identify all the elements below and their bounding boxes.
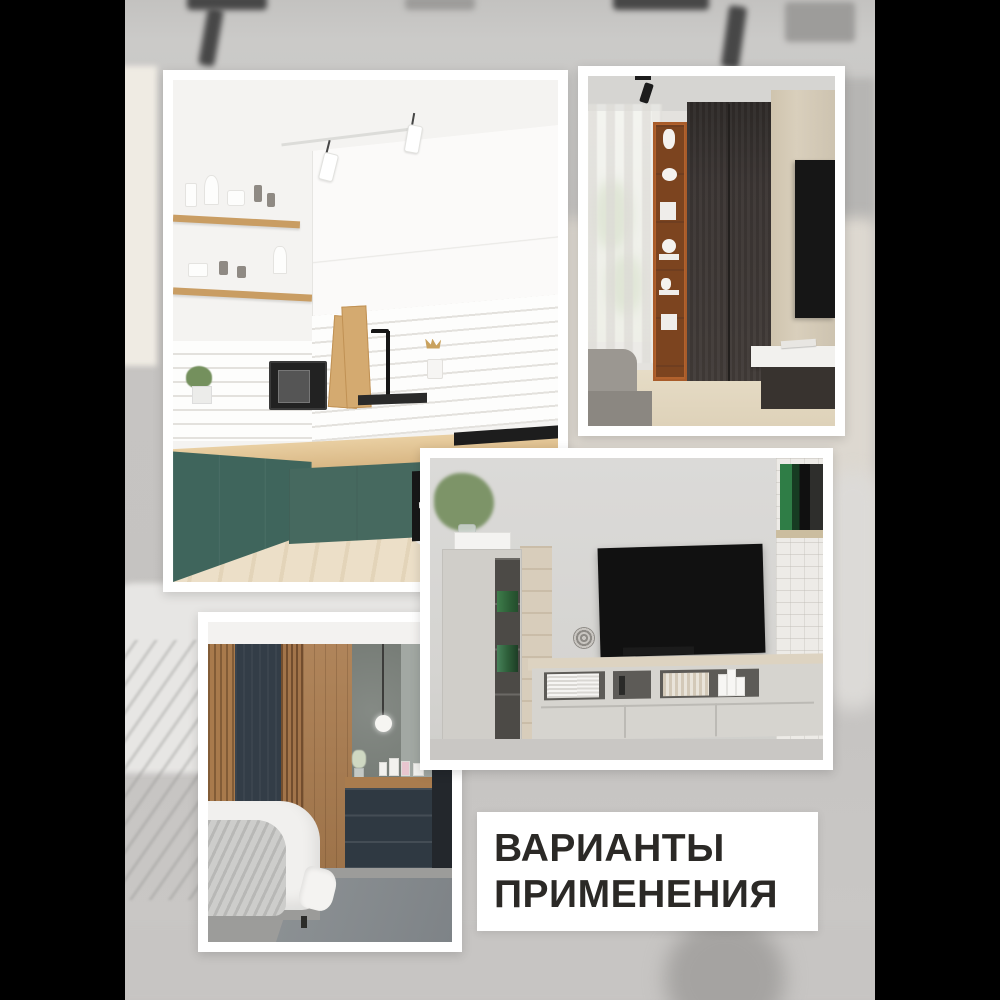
wardrobe-curtain xyxy=(588,104,662,363)
kitchen-dish-stack xyxy=(227,190,245,206)
bedroom-scene xyxy=(208,622,452,942)
wardrobe-track-arm xyxy=(635,76,651,80)
cabinet-green-books xyxy=(497,645,519,672)
caption-box: ВАРИАНТЫ ПРИМЕНЕНИЯ xyxy=(477,812,818,931)
kitchen-bottle xyxy=(204,175,219,205)
kitchen-utensil-crock xyxy=(427,359,443,379)
shelf-books xyxy=(661,314,677,330)
kitchen-jar xyxy=(219,261,228,275)
caption-line-1: ВАРИАНТЫ xyxy=(494,826,818,872)
kitchen-jar xyxy=(267,193,275,207)
photo-tvroom xyxy=(420,448,833,770)
kitchen-plant-pot xyxy=(192,386,212,404)
backdrop-spotlight-faint xyxy=(405,0,475,10)
kitchen-faucet xyxy=(386,331,390,396)
shelf-books xyxy=(660,202,676,220)
tvroom-scene xyxy=(430,458,823,760)
wardrobe-bed-base xyxy=(588,391,652,426)
bed-leg xyxy=(301,916,307,928)
tv-receiver xyxy=(622,646,693,656)
wardrobe-desk xyxy=(751,346,835,367)
photo-wardrobe xyxy=(578,66,845,436)
bed-blanket xyxy=(208,820,286,916)
tv-bench xyxy=(532,664,823,742)
kitchen-plant xyxy=(186,366,212,388)
backdrop-spotlight xyxy=(198,7,224,67)
pendant-lamp xyxy=(375,715,392,732)
backdrop-track-light xyxy=(187,0,267,10)
shelf-ring-vase xyxy=(662,168,677,181)
pendant-cord xyxy=(382,644,384,718)
niche-magazines xyxy=(547,674,599,699)
backdrop-wall-band xyxy=(125,66,157,366)
tvroom-floor xyxy=(430,739,823,760)
niche-basket xyxy=(663,673,710,697)
bedroom-side-unit xyxy=(432,756,452,868)
tv-screen xyxy=(597,543,765,656)
vanity-flowers xyxy=(352,750,366,768)
kitchen-microwave-door xyxy=(278,370,310,404)
kitchen-bowl xyxy=(188,263,208,277)
drawer-seam xyxy=(624,705,626,738)
drawer-seam xyxy=(541,702,814,709)
backdrop-track-light xyxy=(613,0,709,10)
bedroom-ceiling xyxy=(208,622,452,644)
kitchen-sink xyxy=(358,393,427,405)
backdrop-spotlight xyxy=(721,5,747,69)
cabinet-green-books xyxy=(497,591,519,612)
wardrobe-desk-base xyxy=(761,367,835,409)
backdrop-spotlight-faint xyxy=(785,2,855,42)
tvroom-plant xyxy=(434,473,494,531)
kitchen-carafe xyxy=(273,246,287,274)
candle xyxy=(736,677,745,697)
product-image-canvas: ВАРИАНТЫ ПРИМЕНЕНИЯ xyxy=(0,0,1000,1000)
wardrobe-scene xyxy=(588,76,835,426)
kitchen-jar xyxy=(254,185,262,202)
kitchen-jar xyxy=(237,266,246,278)
shelf-book-stack xyxy=(659,290,679,295)
wardrobe-open-shelf xyxy=(653,122,686,381)
vanity-bottle xyxy=(389,758,399,776)
shelf-book-stack xyxy=(659,254,679,260)
vanity-bottle xyxy=(379,762,387,776)
niche-bottle xyxy=(619,676,625,695)
caption-line-2: ПРИМЕНЕНИЯ xyxy=(494,872,818,918)
wardrobe-tv xyxy=(795,160,835,318)
brick-wood-shelf xyxy=(776,530,823,538)
kitchen-vase xyxy=(185,183,197,207)
kitchen-microwave xyxy=(269,361,327,410)
vanity-bottle-pink xyxy=(401,761,410,776)
drawer-seam xyxy=(715,703,717,736)
brick-shelf-books xyxy=(780,464,823,530)
shelf-vase xyxy=(663,129,675,149)
wardrobe-door-seam xyxy=(728,104,730,381)
